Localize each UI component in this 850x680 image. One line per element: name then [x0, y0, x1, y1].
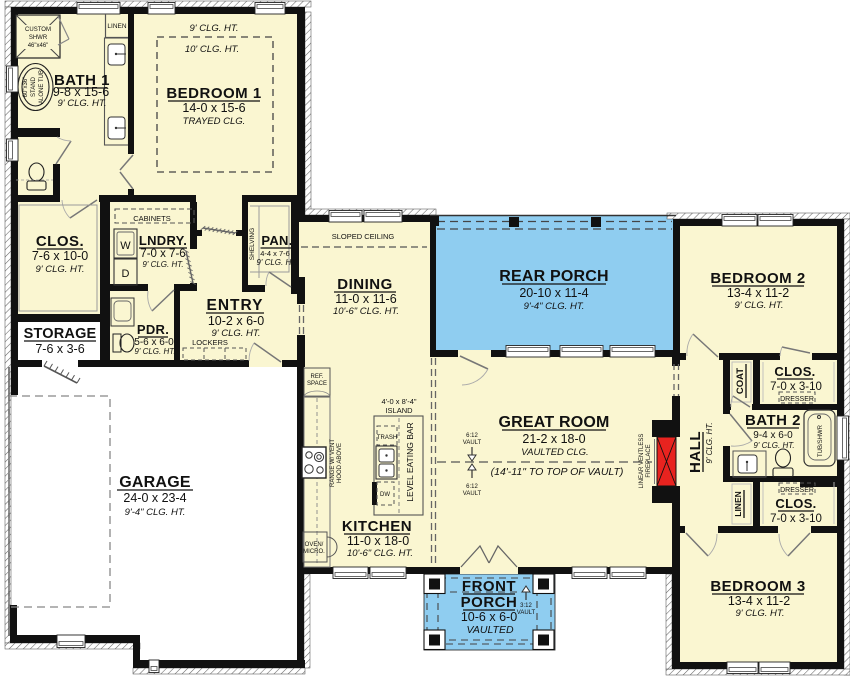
svg-text:10'-6" CLG. HT.: 10'-6" CLG. HT. [347, 548, 413, 559]
svg-text:STORAGE: STORAGE [24, 326, 97, 342]
svg-text:LOCKERS: LOCKERS [192, 338, 228, 347]
svg-text:BEDROOM 1: BEDROOM 1 [166, 85, 261, 102]
svg-text:9' CLG. HT.: 9' CLG. HT. [736, 608, 785, 619]
svg-text:10' CLG. HT.: 10' CLG. HT. [185, 44, 239, 55]
svg-text:VAULT: VAULT [463, 440, 482, 446]
svg-text:DINING: DINING [337, 276, 393, 293]
svg-text:STAND: STAND [31, 76, 37, 97]
svg-text:OVEN/: OVEN/ [305, 542, 324, 548]
svg-text:W: W [120, 240, 131, 252]
svg-text:CLOS.: CLOS. [36, 233, 84, 250]
svg-text:LEVEL EATING BAR: LEVEL EATING BAR [405, 422, 415, 501]
svg-text:SHWR: SHWR [29, 35, 48, 41]
svg-text:DRESSER: DRESSER [780, 487, 814, 494]
svg-text:9' CLG. HT.: 9' CLG. HT. [36, 264, 85, 275]
svg-text:6:12: 6:12 [466, 433, 478, 439]
svg-text:9' CLG. HT.: 9' CLG. HT. [735, 300, 784, 311]
svg-text:9' CLG. HT.: 9' CLG. HT. [705, 422, 714, 463]
svg-text:7-6 x 10-0: 7-6 x 10-0 [32, 249, 88, 263]
svg-text:D: D [122, 268, 130, 280]
svg-text:ISLAND: ISLAND [385, 406, 413, 415]
svg-text:7-0 x 7-6: 7-0 x 7-6 [140, 248, 185, 260]
svg-text:FRONT: FRONT [462, 578, 516, 595]
svg-text:9' CLG. HT.: 9' CLG. HT. [58, 98, 107, 109]
svg-text:LINEN: LINEN [733, 491, 743, 517]
svg-text:BEDROOM 3: BEDROOM 3 [710, 578, 805, 595]
svg-text:DRESSER: DRESSER [780, 396, 814, 403]
svg-text:9' CLG. HT.: 9' CLG. HT. [142, 260, 183, 269]
svg-text:9' CLG. HT.: 9' CLG. HT. [753, 441, 794, 450]
svg-text:VAULT: VAULT [463, 491, 482, 497]
svg-text:7-6 x 3-6: 7-6 x 3-6 [35, 342, 84, 356]
svg-text:14-0 x 15-6: 14-0 x 15-6 [182, 101, 245, 115]
svg-text:13-4 x 11-2: 13-4 x 11-2 [728, 594, 790, 608]
svg-text:13-4 x 11-2: 13-4 x 11-2 [727, 286, 789, 300]
svg-text:VAULTED: VAULTED [466, 624, 513, 636]
svg-text:10-2 x 6-0: 10-2 x 6-0 [208, 314, 264, 328]
svg-text:CLOS.: CLOS. [774, 364, 815, 379]
svg-text:9-4 x 6-0: 9-4 x 6-0 [753, 430, 793, 441]
svg-text:TRAYED CLG.: TRAYED CLG. [183, 116, 246, 127]
svg-text:24-0 x 23-4: 24-0 x 23-4 [123, 491, 186, 505]
svg-text:3:12: 3:12 [520, 603, 532, 609]
svg-text:SLOPED CEILING: SLOPED CEILING [332, 232, 395, 241]
svg-text:LNDRY.: LNDRY. [139, 233, 187, 248]
svg-text:9' CLG. HT.: 9' CLG. HT. [134, 347, 175, 356]
svg-text:9'-4" CLG. HT.: 9'-4" CLG. HT. [524, 301, 585, 312]
svg-text:TUB/SHWR: TUB/SHWR [818, 424, 824, 457]
svg-text:LINEAR VENTLESS: LINEAR VENTLESS [639, 434, 645, 489]
svg-text:HOOD ABOVE: HOOD ABOVE [337, 443, 343, 483]
svg-text:PAN.: PAN. [261, 233, 292, 248]
svg-text:FIREPLACE: FIREPLACE [646, 444, 652, 477]
svg-text:TRASH: TRASH [377, 435, 397, 441]
svg-text:4'-0 x 8'-4": 4'-0 x 8'-4" [381, 397, 416, 406]
svg-text:VAULTED CLG.: VAULTED CLG. [521, 447, 588, 458]
svg-text:GARAGE: GARAGE [119, 474, 191, 491]
svg-text:46"x46": 46"x46" [28, 43, 49, 49]
svg-text:REAR PORCH: REAR PORCH [499, 268, 609, 285]
svg-text:60"x36": 60"x36" [23, 77, 29, 98]
svg-text:9'-4" CLG. HT.: 9'-4" CLG. HT. [125, 507, 186, 518]
svg-text:HALL: HALL [687, 431, 704, 473]
svg-text:CLOS.: CLOS. [775, 496, 816, 511]
svg-text:CUSTOM: CUSTOM [25, 27, 51, 33]
svg-text:PDR.: PDR. [137, 322, 169, 337]
svg-text:COAT: COAT [735, 368, 746, 394]
svg-text:RANGE W/ VENT: RANGE W/ VENT [330, 439, 336, 487]
svg-text:10-6 x 6-0: 10-6 x 6-0 [461, 610, 517, 624]
svg-text:CABINETS: CABINETS [133, 214, 171, 223]
svg-text:7-0 x 3-10: 7-0 x 3-10 [770, 513, 822, 525]
svg-text:ALONE TUB: ALONE TUB [39, 70, 45, 104]
svg-text:10'-6" CLG. HT.: 10'-6" CLG. HT. [333, 306, 399, 317]
svg-text:PORCH: PORCH [461, 594, 518, 611]
svg-text:GREAT ROOM: GREAT ROOM [498, 414, 609, 431]
svg-text:9' CLG. HT.: 9' CLG. HT. [256, 258, 297, 267]
svg-text:SHELVING: SHELVING [249, 228, 256, 260]
svg-text:11-0 x 18-0: 11-0 x 18-0 [347, 534, 409, 548]
svg-text:21-2 x 18-0: 21-2 x 18-0 [522, 432, 585, 446]
svg-text:SPACE: SPACE [307, 381, 327, 387]
svg-text:VAULT: VAULT [517, 610, 536, 616]
svg-text:MICRO.: MICRO. [303, 549, 325, 555]
svg-text:REF.: REF. [310, 374, 323, 380]
svg-text:20-10 x 11-4: 20-10 x 11-4 [519, 286, 588, 300]
svg-text:KITCHEN: KITCHEN [342, 518, 412, 535]
svg-text:BEDROOM 2: BEDROOM 2 [710, 270, 805, 287]
svg-text:4-4 x 7-6: 4-4 x 7-6 [260, 249, 290, 258]
svg-text:9' CLG. HT.: 9' CLG. HT. [190, 23, 239, 34]
svg-text:BATH 2: BATH 2 [745, 412, 801, 429]
svg-text:7-0 x 3-10: 7-0 x 3-10 [770, 381, 822, 393]
svg-text:6:12: 6:12 [466, 484, 478, 490]
svg-text:LINEN: LINEN [107, 23, 126, 30]
svg-text:(14'-11" TO TOP OF VAULT): (14'-11" TO TOP OF VAULT) [491, 466, 624, 478]
svg-text:9-8 x 15-6: 9-8 x 15-6 [53, 85, 109, 99]
svg-text:DW: DW [380, 492, 390, 498]
svg-text:11-0 x 11-6: 11-0 x 11-6 [335, 292, 396, 306]
svg-text:ENTRY: ENTRY [207, 297, 264, 314]
